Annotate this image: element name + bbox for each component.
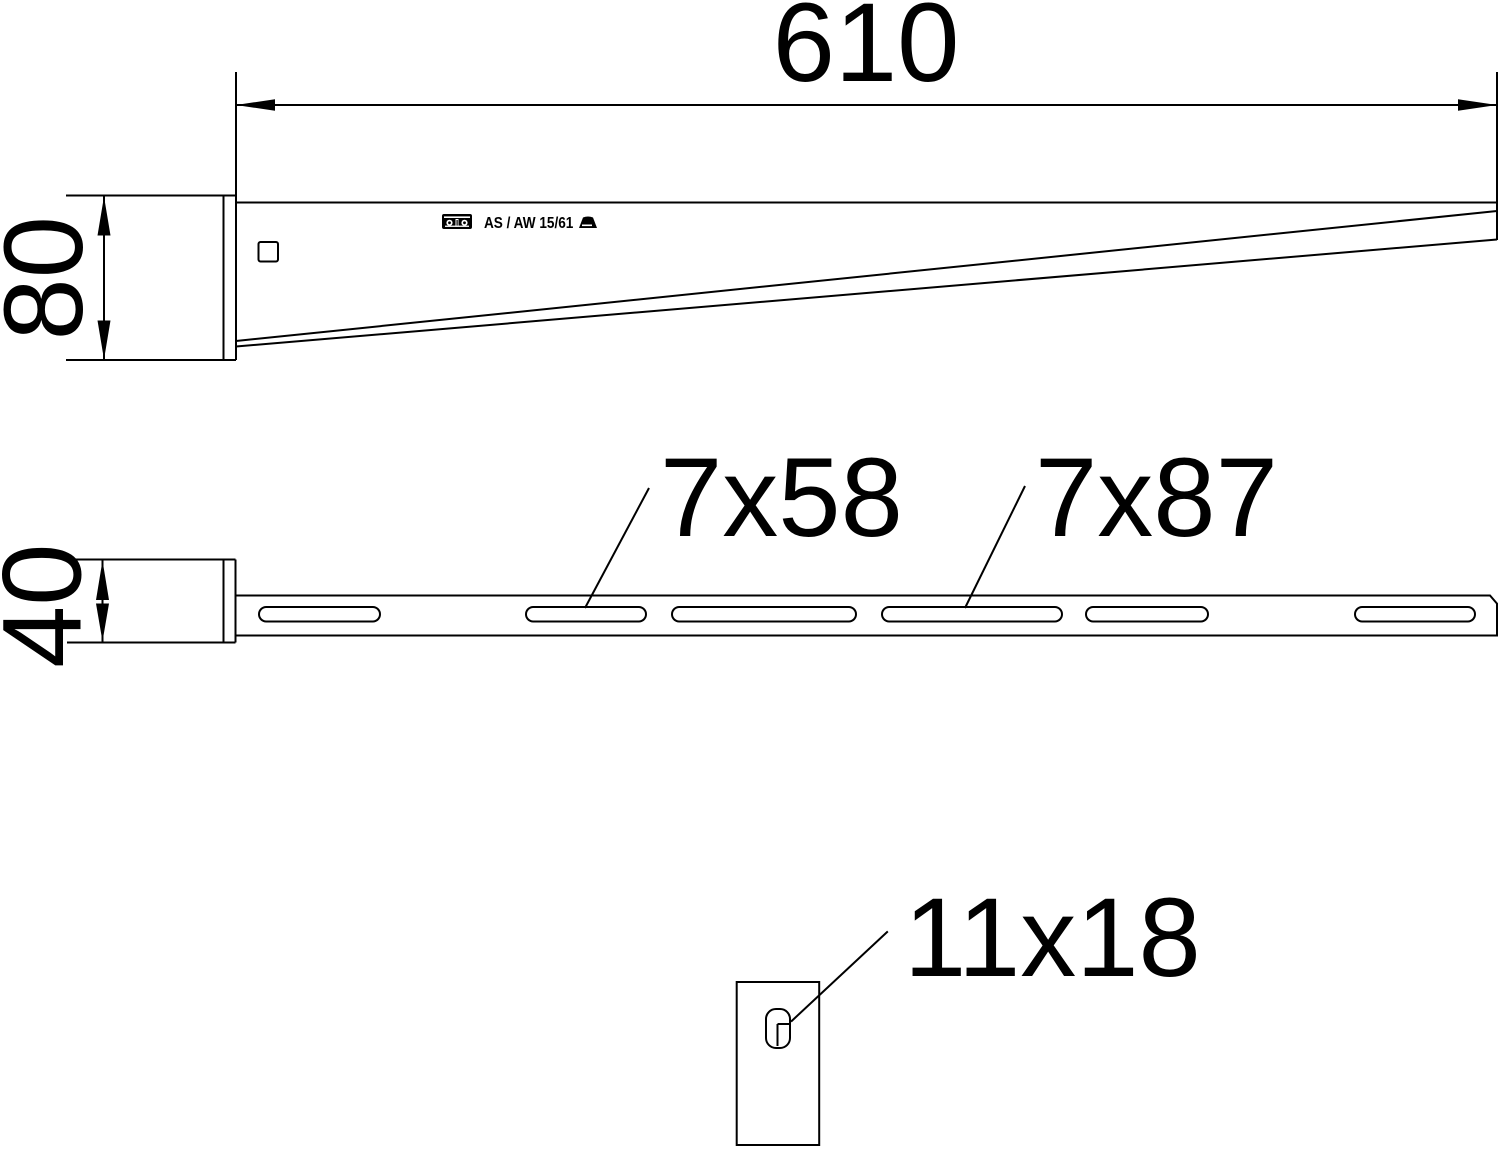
svg-text:80: 80 [0, 216, 106, 341]
svg-text:7x58: 7x58 [660, 435, 903, 560]
svg-text:40: 40 [0, 543, 105, 668]
svg-text:7x87: 7x87 [1035, 435, 1278, 560]
svg-text:AS / AW 15/61: AS / AW 15/61 [484, 215, 573, 232]
svg-text:11x18: 11x18 [904, 875, 1201, 1000]
svg-text:610: 610 [773, 0, 960, 105]
